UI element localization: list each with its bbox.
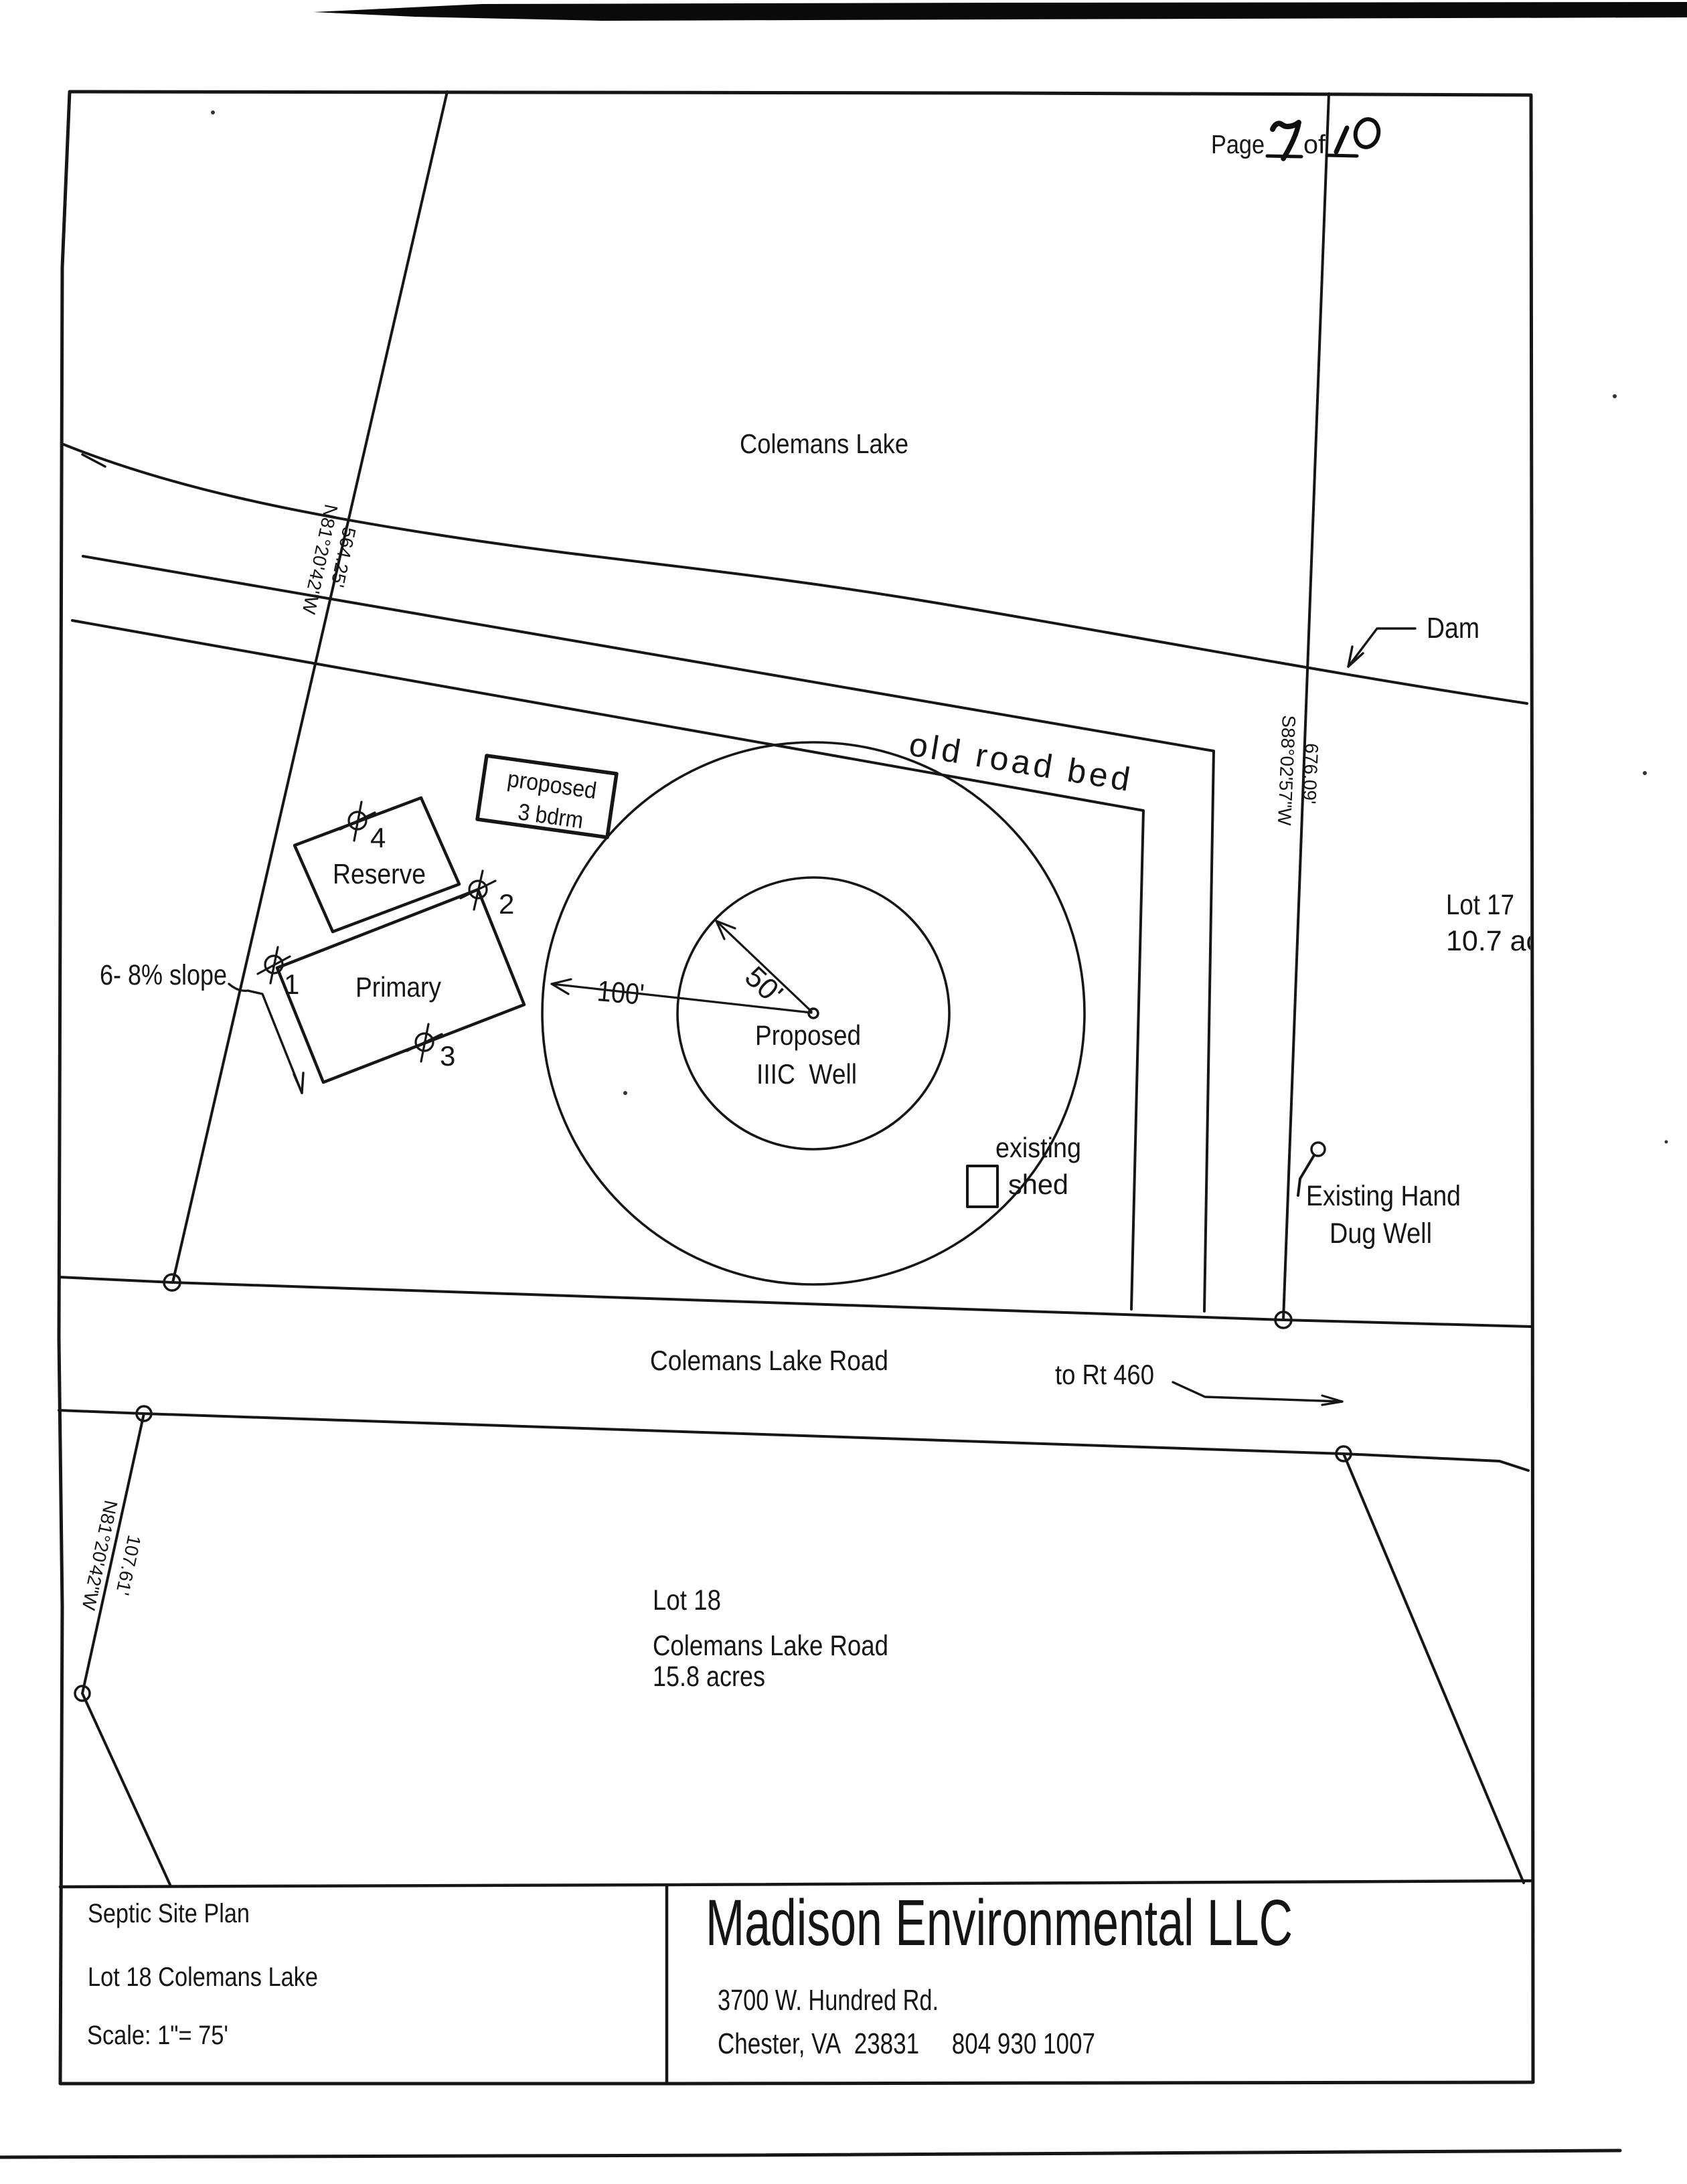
svg-text:existing: existing <box>995 1132 1081 1163</box>
svg-text:to Rt 460: to Rt 460 <box>1055 1359 1154 1390</box>
svg-text:Dam: Dam <box>1427 612 1479 645</box>
svg-text:Reserve: Reserve <box>333 858 426 890</box>
svg-text:Dug Well: Dug Well <box>1330 1217 1432 1250</box>
svg-text:of: of <box>1303 131 1325 159</box>
svg-text:Lot 17: Lot 17 <box>1446 889 1514 921</box>
svg-text:Primary: Primary <box>355 971 441 1003</box>
svg-text:4: 4 <box>370 822 386 853</box>
svg-text:1: 1 <box>284 969 299 1000</box>
svg-text:Colemans Lake Road: Colemans Lake Road <box>650 1345 888 1376</box>
svg-text:100': 100' <box>596 975 645 1011</box>
svg-text:Lot 18 Colemans Lake: Lot 18 Colemans Lake <box>88 1962 318 1992</box>
svg-text:Existing Hand: Existing Hand <box>1306 1180 1461 1212</box>
svg-text:Madison Environmental LLC: Madison Environmental LLC <box>706 1886 1293 1959</box>
svg-text:Colemans Lake Road: Colemans Lake Road <box>653 1630 888 1662</box>
svg-text:2: 2 <box>499 888 514 920</box>
svg-text:Colemans Lake: Colemans Lake <box>740 428 908 459</box>
svg-text:15.8 acres: 15.8 acres <box>653 1661 765 1693</box>
svg-text:shed: shed <box>1008 1169 1068 1200</box>
svg-text:Septic Site Plan: Septic Site Plan <box>88 1899 250 1928</box>
svg-text:3700 W. Hundred Rd.: 3700 W. Hundred Rd. <box>718 1984 939 2017</box>
svg-text:Chester, VA 23831 804 930: Chester, VA 23831 804 930 1007 <box>718 2027 1095 2060</box>
svg-text:6- 8% slope: 6- 8% slope <box>100 959 227 991</box>
svg-text:Page: Page <box>1211 131 1265 159</box>
svg-text:Scale: 1"= 75': Scale: 1"= 75' <box>87 2021 228 2050</box>
svg-text:Lot 18: Lot 18 <box>653 1584 721 1616</box>
svg-text:IIIC Well: IIIC Well <box>756 1058 857 1090</box>
svg-text:676.09': 676.09' <box>1299 743 1322 805</box>
svg-text:3: 3 <box>440 1040 455 1072</box>
svg-text:Proposed: Proposed <box>755 1019 861 1051</box>
